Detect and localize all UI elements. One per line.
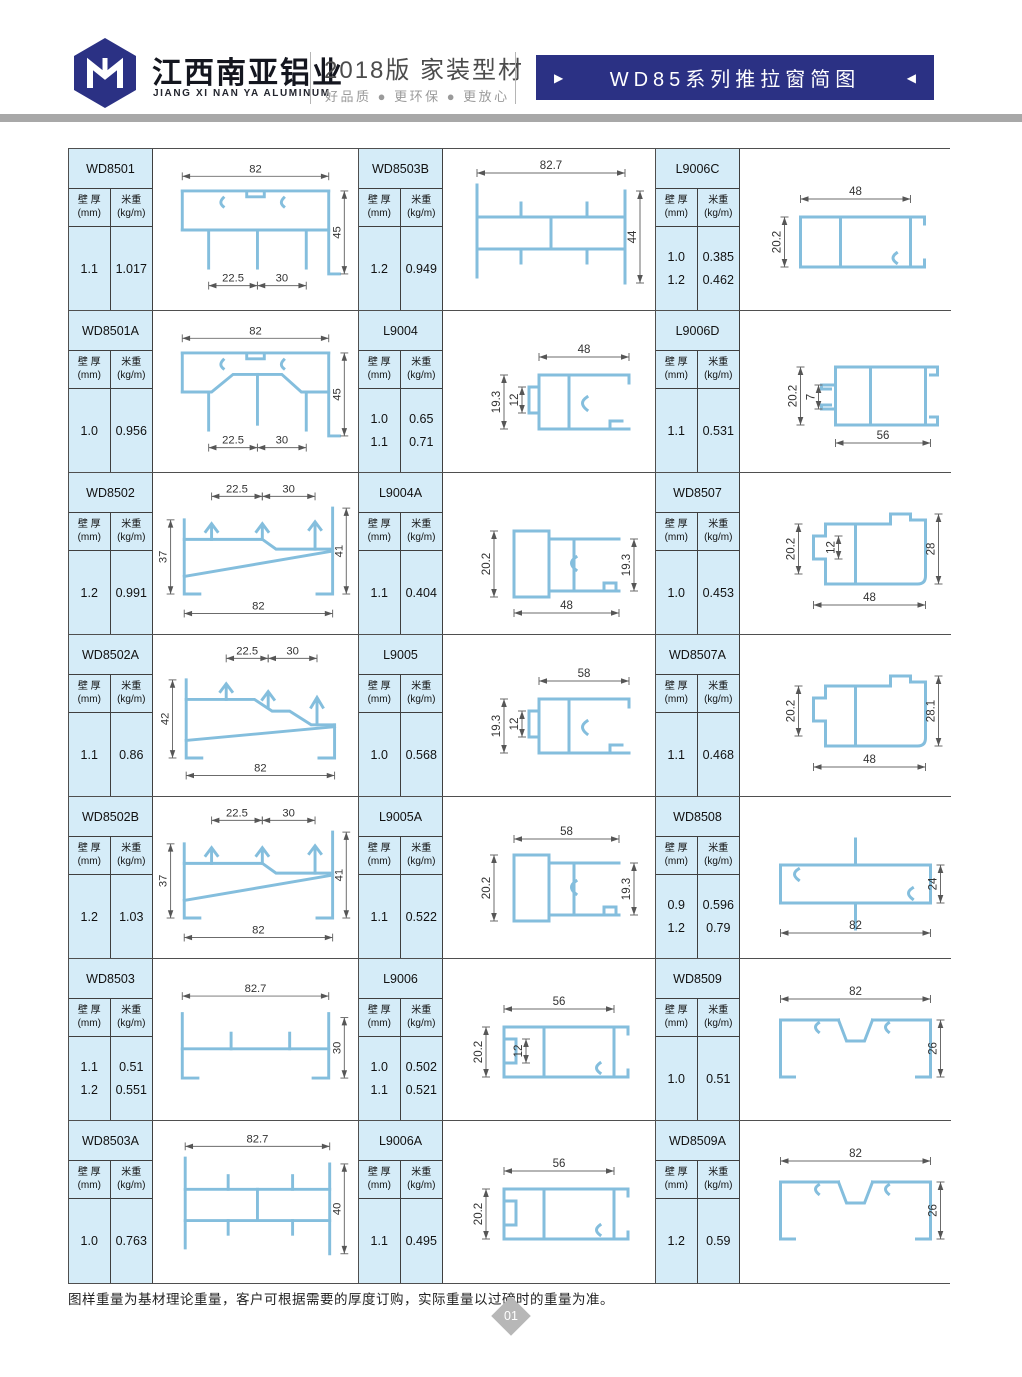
dimension-annotations: 82.730 — [182, 983, 348, 1078]
thickness-values: 1.1 — [656, 713, 698, 796]
drawing-area: 22.530374182 — [153, 797, 358, 958]
profile-drawing: 2482 — [740, 803, 951, 953]
thickness-value: 1.1 — [81, 1060, 98, 1074]
drawing-area: 82.744 — [443, 149, 655, 310]
weight-header: 米重 (kg/m) — [111, 189, 153, 227]
thickness-values: 1.0 — [359, 713, 401, 796]
profile-drawing: 5620.2 — [443, 1127, 655, 1277]
weight-header: 米重 (kg/m) — [111, 513, 153, 551]
thickness-header: 壁 厚 (mm) — [656, 999, 698, 1037]
profile-outline — [814, 676, 926, 746]
profile-outline — [477, 185, 625, 283]
thickness-header: 壁 厚 (mm) — [69, 999, 111, 1037]
svg-text:20.2: 20.2 — [481, 876, 493, 898]
profile-drawing: 4820.2 — [740, 155, 951, 305]
profile-outline — [182, 190, 339, 273]
profile-drawing: 22.530374182 — [153, 803, 358, 953]
weight-header: 米重 (kg/m) — [401, 513, 443, 551]
weight-values: 0.991 — [111, 551, 153, 634]
weight-value: 0.71 — [409, 435, 433, 449]
profile-drawing: 20.2122848 — [740, 479, 951, 629]
dimension-annotations: 4819.312 — [491, 344, 629, 429]
header-rule-bar — [0, 114, 1022, 122]
profile-drawing: 20.219.348 — [443, 479, 655, 629]
profile-drawing: 82.740 — [153, 1127, 358, 1277]
svg-text:19.3: 19.3 — [491, 390, 503, 412]
weight-value: 0.495 — [406, 1234, 437, 1248]
profile-cell: WD8502B 壁 厚 (mm) 米重 (kg/m) 1.2 1.03 22.5… — [69, 797, 359, 959]
thickness-value: 1.1 — [371, 435, 388, 449]
drawing-area: 20.219.348 — [443, 473, 655, 634]
weight-header: 米重 (kg/m) — [401, 351, 443, 389]
weight-value: 0.531 — [703, 424, 734, 438]
profile-outline — [781, 839, 931, 929]
svg-text:30: 30 — [282, 807, 294, 819]
thickness-value: 1.0 — [668, 1072, 685, 1086]
model-number: WD8502 — [69, 473, 152, 513]
weight-header: 米重 (kg/m) — [111, 1161, 153, 1199]
thickness-header: 壁 厚 (mm) — [69, 1161, 111, 1199]
thickness-header: 壁 厚 (mm) — [359, 1161, 401, 1199]
svg-text:24: 24 — [928, 877, 940, 890]
model-number: L9005A — [359, 797, 442, 837]
profile-cell: WD8507A 壁 厚 (mm) 米重 (kg/m) 1.1 0.468 20.… — [656, 635, 951, 797]
profile-drawing: 20.2756 — [740, 317, 951, 467]
svg-text:30: 30 — [331, 1041, 343, 1053]
series-banner: ▶ WD85系列推拉窗简图 ◀ — [536, 55, 934, 100]
spec-table: WD8502 壁 厚 (mm) 米重 (kg/m) 1.2 0.991 — [69, 473, 153, 634]
profile-cell: L9005A 壁 厚 (mm) 米重 (kg/m) 1.1 0.522 5820… — [359, 797, 656, 959]
footer-note: 图样重量为基材理论重量，客户可根据需要的厚度订购，实际重量以过磅时的重量为准。 — [68, 1288, 614, 1308]
thickness-value: 1.0 — [371, 748, 388, 762]
weight-values: 1.03 — [111, 875, 153, 958]
profile-cell: L9004 壁 厚 (mm) 米重 (kg/m) 1.01.1 0.650.71… — [359, 311, 656, 473]
svg-text:30: 30 — [276, 272, 288, 284]
model-number: WD8502A — [69, 635, 152, 675]
svg-text:19.3: 19.3 — [621, 553, 633, 575]
weight-value: 0.991 — [116, 586, 147, 600]
svg-text:20.2: 20.2 — [788, 384, 800, 406]
thickness-header: 壁 厚 (mm) — [69, 189, 111, 227]
spec-table: WD8503 壁 厚 (mm) 米重 (kg/m) 1.11.2 0.510.5… — [69, 959, 153, 1120]
model-number: L9006A — [359, 1121, 442, 1161]
svg-text:58: 58 — [578, 668, 591, 680]
dimension-annotations: 824522.530 — [182, 325, 348, 451]
thickness-header: 壁 厚 (mm) — [656, 351, 698, 389]
spec-table: WD8507 壁 厚 (mm) 米重 (kg/m) 1.0 0.453 — [656, 473, 740, 634]
profile-cell: WD8508 壁 厚 (mm) 米重 (kg/m) 0.91.2 0.5960.… — [656, 797, 951, 959]
banner-left-arrow-icon: ▶ — [554, 72, 563, 84]
dimension-annotations: 82.744 — [477, 160, 644, 283]
thickness-value: 1.1 — [81, 748, 98, 762]
profile-cell: WD8509 壁 厚 (mm) 米重 (kg/m) 1.0 0.51 8226 — [656, 959, 951, 1121]
profile-outline — [822, 367, 938, 425]
thickness-value: 1.2 — [81, 586, 98, 600]
model-number: L9006C — [656, 149, 739, 189]
profile-drawing: 22.5304282 — [153, 641, 358, 791]
profile-drawing: 824522.530 — [153, 317, 358, 467]
thickness-values: 1.1 — [359, 1199, 401, 1283]
svg-text:7: 7 — [806, 393, 818, 399]
model-number: L9006 — [359, 959, 442, 999]
profile-drawing: 5820.219.3 — [443, 803, 655, 953]
svg-text:28: 28 — [926, 542, 938, 555]
thickness-value: 1.2 — [668, 921, 685, 935]
thickness-values: 1.1 — [359, 551, 401, 634]
model-number: WD8509 — [656, 959, 739, 999]
weight-values: 0.522 — [401, 875, 443, 958]
thickness-values: 1.01.2 — [656, 227, 698, 310]
profile-cell: L9006C 壁 厚 (mm) 米重 (kg/m) 1.01.2 0.3850.… — [656, 149, 951, 311]
spec-table: L9006 壁 厚 (mm) 米重 (kg/m) 1.01.1 0.5020.5… — [359, 959, 443, 1120]
weight-values: 0.568 — [401, 713, 443, 796]
profile-cell: L9006A 壁 厚 (mm) 米重 (kg/m) 1.1 0.495 5620… — [359, 1121, 656, 1283]
profile-cell: WD8503B 壁 厚 (mm) 米重 (kg/m) 1.2 0.949 82.… — [359, 149, 656, 311]
drawing-area: 8226 — [740, 1121, 951, 1283]
profile-outline — [781, 1182, 931, 1239]
weight-value: 0.65 — [409, 412, 433, 426]
weight-values: 0.468 — [698, 713, 740, 796]
profile-cell: WD8502 壁 厚 (mm) 米重 (kg/m) 1.2 0.991 22.5… — [69, 473, 359, 635]
thickness-values: 1.1 — [69, 227, 111, 310]
weight-values: 1.017 — [111, 227, 153, 310]
weight-header: 米重 (kg/m) — [401, 675, 443, 713]
profile-outline — [184, 508, 332, 594]
svg-text:12: 12 — [513, 1044, 525, 1057]
thickness-value: 1.0 — [371, 1060, 388, 1074]
spec-table: WD8503B 壁 厚 (mm) 米重 (kg/m) 1.2 0.949 — [359, 149, 443, 310]
thickness-values: 0.91.2 — [656, 875, 698, 958]
weight-values: 0.5020.521 — [401, 1037, 443, 1120]
thickness-header: 壁 厚 (mm) — [359, 513, 401, 551]
svg-text:19.3: 19.3 — [491, 714, 503, 736]
profile-drawing: 8226 — [740, 965, 951, 1115]
model-number: WD8507 — [656, 473, 739, 513]
weight-header: 米重 (kg/m) — [401, 999, 443, 1037]
thickness-value: 0.9 — [668, 898, 685, 912]
thickness-values: 1.11.2 — [69, 1037, 111, 1120]
thickness-value: 1.0 — [668, 586, 685, 600]
drawing-area: 5620.2 — [443, 1121, 655, 1283]
weight-header: 米重 (kg/m) — [698, 513, 740, 551]
drawing-area: 8226 — [740, 959, 951, 1120]
profile-cell: L9004A 壁 厚 (mm) 米重 (kg/m) 1.1 0.404 20.2… — [359, 473, 656, 635]
profile-outline — [185, 1158, 329, 1254]
svg-text:82: 82 — [849, 1148, 862, 1160]
drawing-area: 5820.219.3 — [443, 797, 655, 958]
weight-value: 0.551 — [116, 1083, 147, 1097]
profile-outline — [182, 352, 339, 435]
thickness-header: 壁 厚 (mm) — [656, 837, 698, 875]
svg-text:82: 82 — [252, 924, 264, 936]
model-number: WD8501 — [69, 149, 152, 189]
thickness-value: 1.2 — [668, 273, 685, 287]
svg-text:48: 48 — [863, 592, 876, 604]
header-divider-2 — [515, 52, 516, 104]
svg-text:30: 30 — [286, 645, 298, 657]
svg-text:20.2: 20.2 — [786, 699, 798, 721]
spec-table: WD8507A 壁 厚 (mm) 米重 (kg/m) 1.1 0.468 — [656, 635, 740, 796]
svg-text:45: 45 — [331, 388, 343, 400]
dimension-annotations: 82.740 — [185, 1133, 348, 1253]
profile-outline — [182, 1013, 328, 1077]
thickness-header: 壁 厚 (mm) — [359, 675, 401, 713]
profile-outline — [529, 375, 629, 429]
weight-values: 0.59 — [698, 1199, 740, 1283]
dimension-annotations: 824522.530 — [182, 163, 348, 289]
thickness-values: 1.1 — [656, 389, 698, 472]
drawing-area: 20.2122848 — [740, 473, 951, 634]
profile-drawing: 22.530374182 — [153, 479, 358, 629]
spec-table: WD8501A 壁 厚 (mm) 米重 (kg/m) 1.0 0.956 — [69, 311, 153, 472]
dimension-annotations: 20.2756 — [788, 367, 931, 447]
svg-text:22.5: 22.5 — [222, 272, 244, 284]
svg-text:48: 48 — [849, 186, 862, 198]
svg-text:56: 56 — [553, 996, 566, 1008]
spec-table: L9006A 壁 厚 (mm) 米重 (kg/m) 1.1 0.495 — [359, 1121, 443, 1283]
svg-text:20.2: 20.2 — [473, 1203, 485, 1225]
svg-text:82: 82 — [252, 600, 264, 612]
drawing-area: 82.730 — [153, 959, 358, 1120]
thickness-value: 1.2 — [371, 262, 388, 276]
thickness-header: 壁 厚 (mm) — [69, 675, 111, 713]
model-number: L9006D — [656, 311, 739, 351]
thickness-value: 1.0 — [668, 250, 685, 264]
drawing-area: 2482 — [740, 797, 951, 958]
page-number: 01 — [504, 1309, 518, 1323]
weight-value: 0.51 — [119, 1060, 143, 1074]
spec-table: WD8509 壁 厚 (mm) 米重 (kg/m) 1.0 0.51 — [656, 959, 740, 1120]
thickness-header: 壁 厚 (mm) — [69, 351, 111, 389]
banner-title: WD85系列推拉窗简图 — [563, 63, 907, 92]
weight-value: 0.59 — [706, 1234, 730, 1248]
thickness-values: 1.0 — [656, 551, 698, 634]
svg-text:42: 42 — [160, 712, 172, 724]
svg-text:48: 48 — [560, 600, 573, 612]
thickness-values: 1.2 — [656, 1199, 698, 1283]
weight-value: 0.404 — [406, 586, 437, 600]
weight-value: 0.86 — [119, 748, 143, 762]
svg-text:56: 56 — [553, 1158, 566, 1170]
profile-cell: WD8503A 壁 厚 (mm) 米重 (kg/m) 1.0 0.763 82.… — [69, 1121, 359, 1283]
thickness-value: 1.1 — [81, 262, 98, 276]
weight-value: 0.568 — [406, 748, 437, 762]
svg-text:22.5: 22.5 — [236, 645, 258, 657]
profile-cell: WD8503 壁 厚 (mm) 米重 (kg/m) 1.11.2 0.510.5… — [69, 959, 359, 1121]
thickness-value: 1.2 — [668, 1234, 685, 1248]
weight-value: 0.949 — [406, 262, 437, 276]
svg-text:12: 12 — [509, 717, 521, 730]
company-logo-icon — [70, 36, 140, 110]
header-divider-1 — [310, 52, 311, 104]
svg-text:26: 26 — [928, 1204, 940, 1217]
weight-header: 米重 (kg/m) — [111, 999, 153, 1037]
profile-outline — [529, 699, 629, 753]
svg-text:12: 12 — [509, 393, 521, 406]
profile-drawing: 5819.312 — [443, 641, 655, 791]
weight-value: 0.521 — [406, 1083, 437, 1097]
spec-table: WD8502B 壁 厚 (mm) 米重 (kg/m) 1.2 1.03 — [69, 797, 153, 958]
svg-text:20.2: 20.2 — [481, 552, 493, 574]
drawing-area: 5819.312 — [443, 635, 655, 796]
spec-table: WD8509A 壁 厚 (mm) 米重 (kg/m) 1.2 0.59 — [656, 1121, 740, 1283]
profile-cell: L9006 壁 厚 (mm) 米重 (kg/m) 1.01.1 0.5020.5… — [359, 959, 656, 1121]
spec-table: WD8503A 壁 厚 (mm) 米重 (kg/m) 1.0 0.763 — [69, 1121, 153, 1283]
weight-value: 0.522 — [406, 910, 437, 924]
weight-values: 0.949 — [401, 227, 443, 310]
weight-value: 1.03 — [119, 910, 143, 924]
svg-text:82: 82 — [849, 920, 862, 932]
weight-values: 0.495 — [401, 1199, 443, 1283]
svg-text:48: 48 — [578, 344, 591, 356]
svg-text:45: 45 — [331, 226, 343, 238]
svg-text:26: 26 — [928, 1042, 940, 1055]
spec-table: L9004A 壁 厚 (mm) 米重 (kg/m) 1.1 0.404 — [359, 473, 443, 634]
weight-value: 0.385 — [703, 250, 734, 264]
weight-header: 米重 (kg/m) — [698, 189, 740, 227]
weight-values: 0.510.551 — [111, 1037, 153, 1120]
profile-cell: WD8502A 壁 厚 (mm) 米重 (kg/m) 1.1 0.86 22.5… — [69, 635, 359, 797]
catalog-page: 江西南亚铝业 JIANG XI NAN YA ALUMINUM 2018版 家装… — [0, 0, 1022, 1377]
drawing-area: 824522.530 — [153, 311, 358, 472]
svg-text:48: 48 — [863, 754, 876, 766]
thickness-value: 1.1 — [371, 586, 388, 600]
spec-table: L9005 壁 厚 (mm) 米重 (kg/m) 1.0 0.568 — [359, 635, 443, 796]
thickness-values: 1.0 — [69, 389, 111, 472]
weight-values: 0.956 — [111, 389, 153, 472]
svg-text:30: 30 — [276, 434, 288, 446]
svg-text:37: 37 — [158, 550, 170, 562]
svg-text:20.2: 20.2 — [772, 230, 784, 252]
weight-header: 米重 (kg/m) — [401, 1161, 443, 1199]
dimension-annotations: 20.228.148 — [786, 676, 943, 771]
drawing-area: 22.5304282 — [153, 635, 358, 796]
thickness-value: 1.0 — [81, 424, 98, 438]
profile-cell: WD8509A 壁 厚 (mm) 米重 (kg/m) 1.2 0.59 8226 — [656, 1121, 951, 1283]
profile-drawing: 82.744 — [443, 155, 655, 305]
weight-value: 0.956 — [116, 424, 147, 438]
thickness-header: 壁 厚 (mm) — [656, 675, 698, 713]
weight-values: 0.404 — [401, 551, 443, 634]
svg-text:56: 56 — [877, 430, 890, 442]
weight-header: 米重 (kg/m) — [111, 351, 153, 389]
thickness-header: 壁 厚 (mm) — [656, 189, 698, 227]
thickness-header: 壁 厚 (mm) — [359, 189, 401, 227]
dimension-annotations: 20.219.348 — [481, 531, 638, 617]
weight-values: 0.3850.462 — [698, 227, 740, 310]
svg-text:82.7: 82.7 — [540, 160, 562, 172]
drawing-area: 824522.530 — [153, 149, 358, 310]
weight-values: 0.86 — [111, 713, 153, 796]
profile-drawing: 20.228.148 — [740, 641, 951, 791]
weight-value: 0.453 — [703, 586, 734, 600]
dimension-annotations: 20.2122848 — [786, 514, 943, 609]
weight-header: 米重 (kg/m) — [111, 837, 153, 875]
model-number: WD8507A — [656, 635, 739, 675]
weight-header: 米重 (kg/m) — [111, 675, 153, 713]
brand-name-en: JIANG XI NAN YA ALUMINUM — [153, 88, 331, 99]
profile-outline — [781, 1020, 931, 1077]
thickness-value: 1.1 — [371, 1234, 388, 1248]
weight-value: 0.596 — [703, 898, 734, 912]
profile-cell: WD8507 壁 厚 (mm) 米重 (kg/m) 1.0 0.453 20.2… — [656, 473, 951, 635]
profile-drawing: 4819.312 — [443, 317, 655, 467]
thickness-value: 1.1 — [668, 424, 685, 438]
edition-title: 2018版 家装型材 — [324, 50, 524, 85]
weight-values: 0.453 — [698, 551, 740, 634]
dimension-annotations: 5819.312 — [491, 668, 629, 753]
profile-drawing: 8226 — [740, 1127, 951, 1277]
thickness-value: 1.0 — [81, 1234, 98, 1248]
brand-name-cn: 江西南亚铝业 — [152, 48, 344, 92]
dimension-annotations: 2482 — [781, 865, 945, 937]
thickness-values: 1.01.1 — [359, 1037, 401, 1120]
spec-table: WD8502A 壁 厚 (mm) 米重 (kg/m) 1.1 0.86 — [69, 635, 153, 796]
profile-outline — [184, 832, 332, 918]
weight-value: 0.763 — [116, 1234, 147, 1248]
thickness-header: 壁 厚 (mm) — [69, 837, 111, 875]
profile-outline — [514, 531, 619, 597]
thickness-values: 1.2 — [69, 875, 111, 958]
thickness-header: 壁 厚 (mm) — [359, 837, 401, 875]
spec-table: WD8501 壁 厚 (mm) 米重 (kg/m) 1.1 1.017 — [69, 149, 153, 310]
weight-value: 0.462 — [703, 273, 734, 287]
thickness-values: 1.2 — [69, 551, 111, 634]
profile-outline — [514, 855, 619, 921]
drawing-area: 20.228.148 — [740, 635, 951, 796]
drawing-area: 20.2756 — [740, 311, 951, 472]
drawing-area: 22.530374182 — [153, 473, 358, 634]
svg-text:37: 37 — [158, 874, 170, 886]
thickness-value: 1.1 — [371, 910, 388, 924]
dimension-annotations: 8226 — [781, 1148, 945, 1239]
svg-text:22.5: 22.5 — [222, 434, 244, 446]
model-number: L9004A — [359, 473, 442, 513]
model-number: L9005 — [359, 635, 442, 675]
thickness-header: 壁 厚 (mm) — [656, 1161, 698, 1199]
weight-value: 0.468 — [703, 748, 734, 762]
profile-drawing: 5620.212 — [443, 965, 655, 1115]
svg-text:58: 58 — [560, 826, 573, 838]
slogan-text: 好品质 ● 更环保 ● 更放心 — [325, 86, 510, 105]
model-number: WD8503B — [359, 149, 442, 189]
banner-right-arrow-icon: ◀ — [907, 72, 916, 84]
thickness-values: 1.01.1 — [359, 389, 401, 472]
weight-header: 米重 (kg/m) — [698, 999, 740, 1037]
weight-value: 0.51 — [706, 1072, 730, 1086]
svg-text:41: 41 — [333, 868, 345, 880]
svg-text:20.2: 20.2 — [473, 1040, 485, 1062]
drawing-area: 4819.312 — [443, 311, 655, 472]
thickness-values: 1.0 — [69, 1199, 111, 1283]
profile-cell: WD8501 壁 厚 (mm) 米重 (kg/m) 1.1 1.017 8245… — [69, 149, 359, 311]
weight-header: 米重 (kg/m) — [401, 837, 443, 875]
svg-text:22.5: 22.5 — [226, 483, 248, 495]
thickness-value: 1.1 — [668, 748, 685, 762]
weight-value: 0.502 — [406, 1060, 437, 1074]
svg-text:12: 12 — [826, 541, 838, 554]
drawing-area: 4820.2 — [740, 149, 951, 310]
svg-text:41: 41 — [333, 544, 345, 556]
profile-outline — [801, 217, 925, 267]
weight-value: 1.017 — [116, 262, 147, 276]
profile-cell: L9006D 壁 厚 (mm) 米重 (kg/m) 1.1 0.531 20.2… — [656, 311, 951, 473]
svg-text:82: 82 — [254, 762, 266, 774]
thickness-header: 壁 厚 (mm) — [69, 513, 111, 551]
weight-values: 0.650.71 — [401, 389, 443, 472]
svg-text:82: 82 — [249, 163, 261, 175]
thickness-values: 1.2 — [359, 227, 401, 310]
